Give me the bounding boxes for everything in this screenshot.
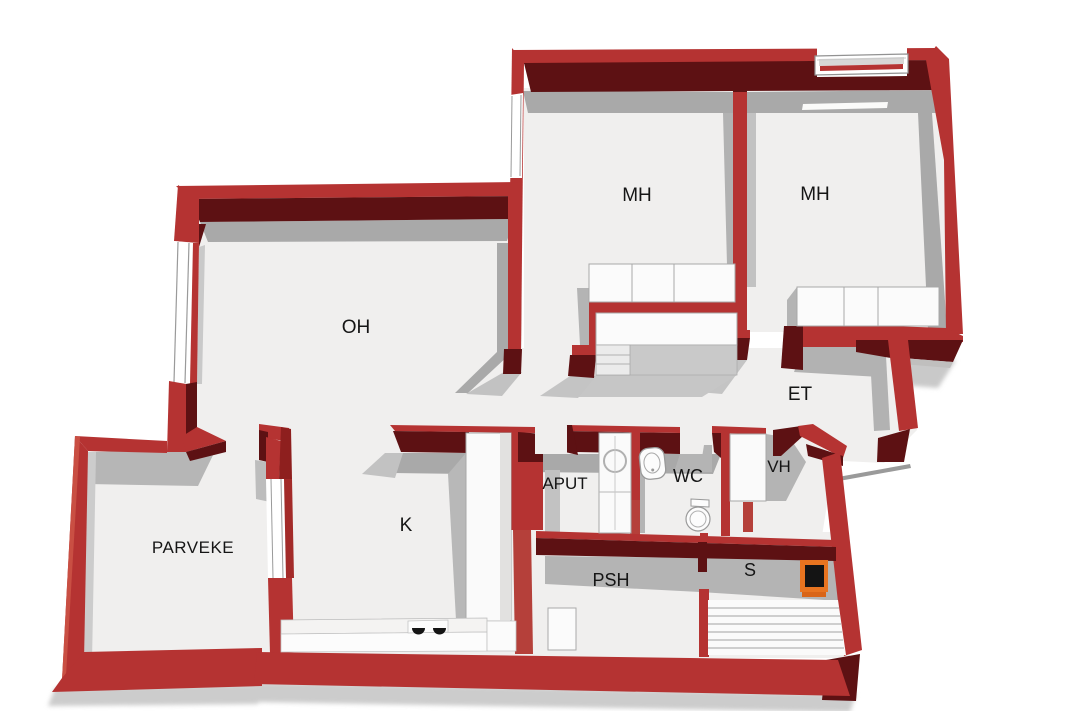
svg-text:APUT: APUT — [542, 474, 587, 493]
svg-text:PSH: PSH — [592, 570, 629, 590]
svg-text:WC: WC — [673, 466, 703, 486]
svg-text:OH: OH — [342, 317, 371, 338]
svg-text:VH: VH — [767, 457, 791, 476]
svg-text:MH: MH — [622, 185, 652, 206]
svg-text:S: S — [744, 560, 756, 580]
svg-text:PARVEKE: PARVEKE — [152, 538, 234, 557]
svg-text:MH: MH — [800, 184, 830, 205]
svg-text:ET: ET — [788, 384, 813, 405]
svg-text:K: K — [400, 515, 413, 536]
